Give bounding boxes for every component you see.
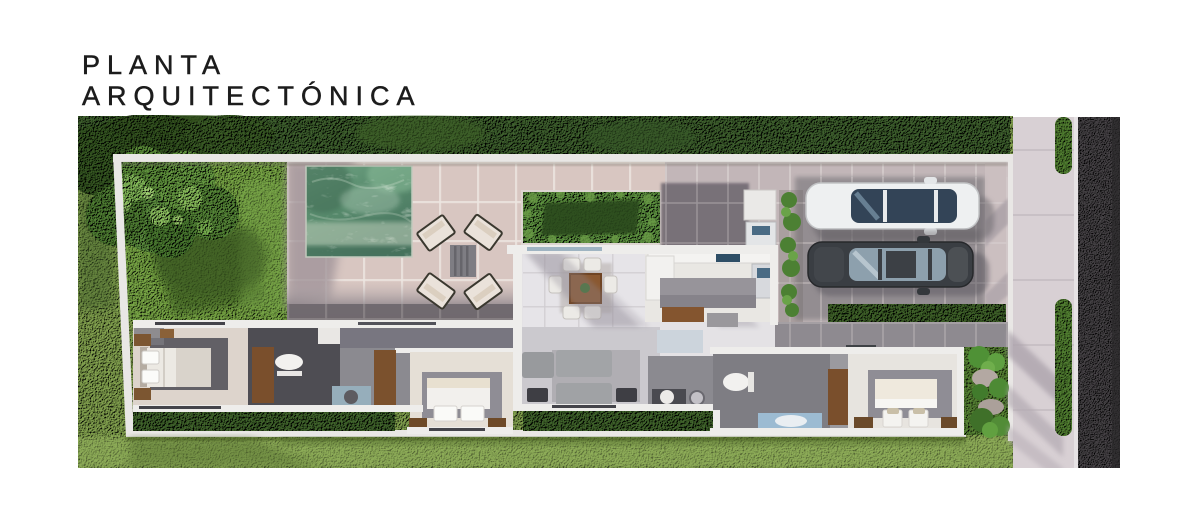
svg-text:PLANTA: PLANTA <box>82 50 227 80</box>
svg-text:ARQUITECTÓNICA: ARQUITECTÓNICA <box>82 80 422 111</box>
